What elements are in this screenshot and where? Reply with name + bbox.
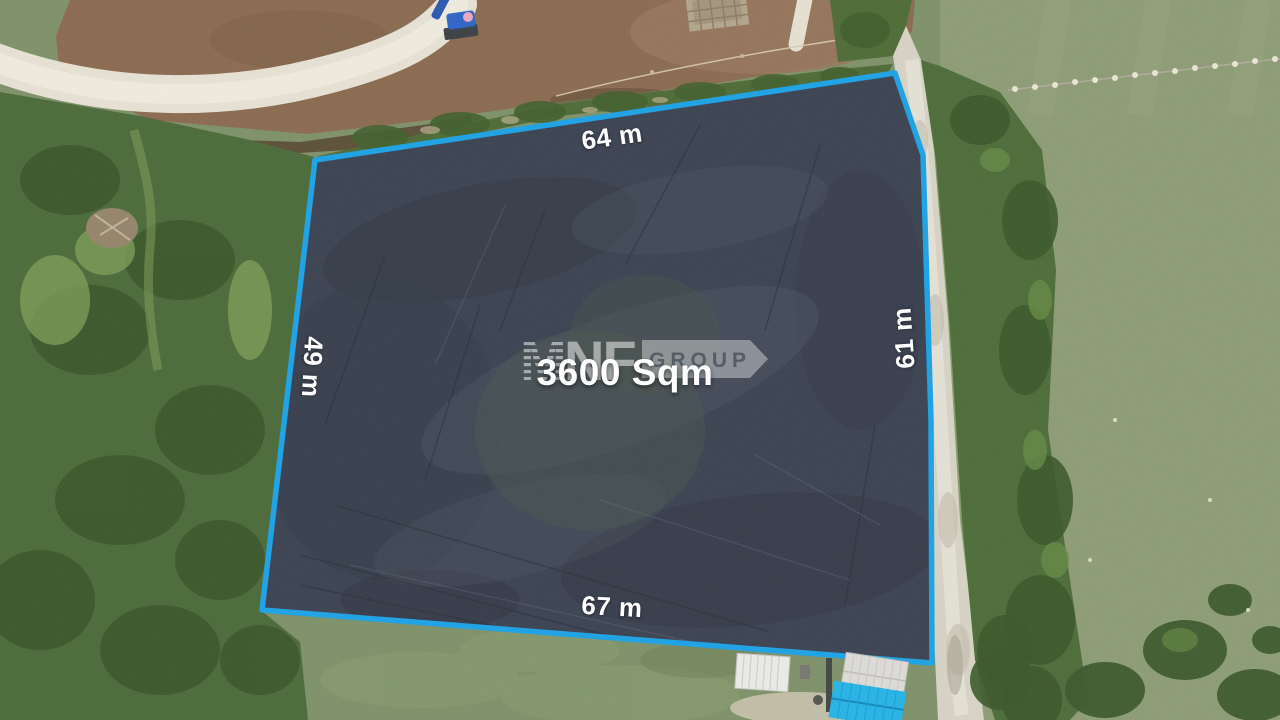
aerial-photo: M NF GROUP 64 m 49 m 61 m 67 m 3600 Sqm: [0, 0, 1280, 720]
grain-overlay: [0, 0, 1280, 720]
aerial-scene-illustration: [0, 0, 1280, 720]
